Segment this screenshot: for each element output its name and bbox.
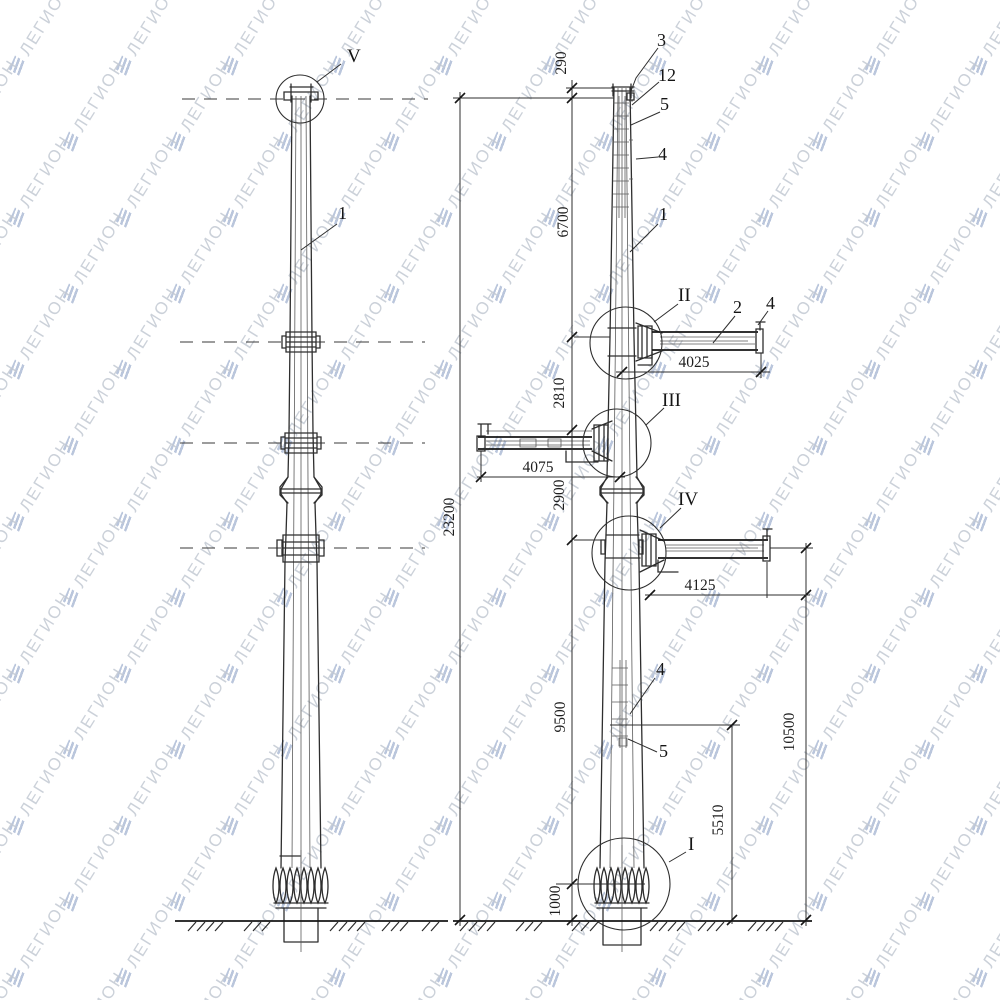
crossarm-III-inner [486, 439, 590, 447]
callout-5-upper-leader [631, 112, 660, 125]
callout-5-upper: 5 [660, 94, 669, 114]
dim-5510: 5510 [710, 804, 727, 835]
detail-V-leader [317, 64, 341, 82]
dim-23200: 23200 [441, 497, 458, 536]
callout-2: 2 [733, 297, 742, 317]
crossarm-IV-chords [658, 540, 768, 558]
left-callout-1: 1 [338, 203, 347, 223]
callout-4-lower: 4 [656, 659, 665, 679]
callout-4-arm2-leader [758, 311, 768, 325]
dimension-10500: 10500 [770, 543, 813, 926]
callout-3-leader [631, 48, 658, 91]
left-ground-hatching [188, 922, 439, 931]
callout-12: 12 [658, 65, 676, 85]
crossarm-III [477, 421, 612, 462]
right-pole-ladder-lower [612, 660, 628, 748]
callout-4-upper: 4 [658, 144, 667, 164]
detail-I-leader [669, 852, 686, 862]
callout-5-lower: 5 [659, 741, 668, 761]
crossarm-IV-end [658, 529, 772, 572]
dim-4125-line [645, 562, 810, 598]
detail-label-V: V [347, 46, 361, 67]
detail-label-II: II [678, 285, 691, 306]
callout-2-leader [713, 316, 735, 343]
dim-2810: 2810 [551, 377, 568, 408]
callout-12-leader [632, 82, 659, 105]
callout-4-arm2: 4 [766, 293, 775, 313]
dimension-4125: 4125 [645, 562, 811, 600]
left-axis-dashed-lines [180, 99, 428, 548]
dim-4025: 4025 [679, 354, 710, 371]
crossarm-II-inner [660, 337, 755, 344]
detail-circle-III [583, 409, 651, 477]
pole-technical-drawing: V 1 [0, 0, 1000, 1000]
callout-3: 3 [657, 30, 666, 50]
left-view: V 1 [175, 46, 448, 952]
crossarm-IV-inner [666, 545, 764, 551]
drawing-canvas: ЛЕГИОНЛЕГИОНЛЕГИОНЛЕГИОНЛЕГИОНЛЕГИОНЛЕГИ… [0, 0, 1000, 1000]
detail-label-IV: IV [678, 489, 698, 510]
crossarm-II-bracket [636, 323, 662, 361]
right-view: II III IV I 3 12 5 4 1 2 4 [441, 30, 813, 952]
crossarm-III-bracket [566, 421, 612, 462]
right-pole-base-ribs [594, 868, 649, 908]
dim-4075: 4075 [523, 459, 554, 476]
right-pole-facet-lines [610, 88, 634, 868]
detail-IV-leader [660, 508, 681, 528]
dim-9500: 9500 [552, 701, 569, 732]
crossarm-IV [640, 529, 772, 572]
right-pole-top-cap [612, 84, 634, 100]
dim-6700: 6700 [555, 206, 572, 237]
dimension-23200: 23200 [441, 92, 465, 926]
detail-circle-IV [592, 516, 666, 590]
callout-1-right-leader [630, 224, 658, 252]
dim-4125: 4125 [685, 577, 716, 594]
callout-1-right: 1 [659, 204, 668, 224]
detail-II-leader [654, 304, 678, 322]
dim-10500: 10500 [781, 712, 798, 751]
detail-label-III: III [662, 390, 681, 411]
left-pole-facet-lines [292, 96, 310, 868]
detail-label-I: I [688, 834, 694, 855]
dim-2900: 2900 [551, 479, 568, 510]
dim-290: 290 [553, 51, 570, 75]
dim-1000: 1000 [547, 885, 564, 916]
callout-4-lower-leader [630, 678, 655, 714]
callout-4-upper-leader [636, 157, 658, 159]
